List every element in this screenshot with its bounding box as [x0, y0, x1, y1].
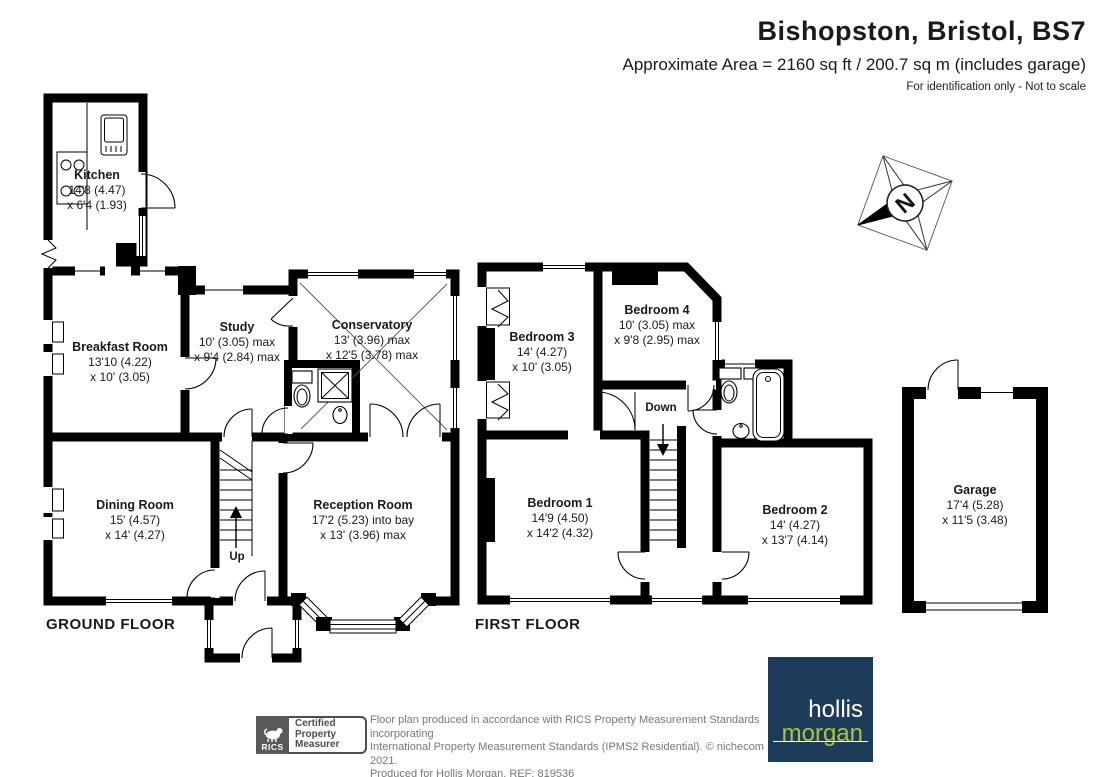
front-door-gap [240, 654, 272, 663]
header: Bishopston, Bristol, BS7 Approximate Are… [622, 16, 1086, 93]
bedroom3-door-gap [568, 431, 600, 440]
page-title: Bishopston, Bristol, BS7 [622, 16, 1086, 47]
bedroom3-window [543, 263, 585, 272]
bedroom4-door-gap [686, 381, 716, 390]
room-porch [209, 601, 297, 658]
rics-cert-box: Certified Property Measurer [289, 716, 367, 754]
room-label-bedroom2: Bedroom 2 14' (4.27) x 13'7 (4.14) [720, 503, 870, 548]
logo-morgan: morgan [782, 721, 863, 746]
room-label-kitchen: Kitchen 14'8 (4.47) x 6'4 (1.93) [22, 168, 172, 213]
dining-door-gap [211, 568, 220, 598]
wc-door-gap [285, 406, 293, 434]
bedroom1-door-gap [641, 552, 650, 582]
chimney-breast [612, 267, 658, 285]
stairwell-wall [677, 426, 686, 548]
study-hall-door-gap [222, 433, 252, 442]
room-label-study: Study 10' (3.05) max x 9'4 (2.84) max [162, 320, 312, 365]
conservatory-door-gap [368, 433, 442, 442]
room-label-bedroom1: Bedroom 1 14'9 (4.50) x 14'2 (4.32) [485, 496, 635, 541]
stairs-down [650, 424, 677, 540]
bay-window [291, 593, 436, 633]
rics-lion-icon [262, 726, 284, 742]
wall-chunk [178, 266, 196, 295]
compass-rose: N [836, 134, 974, 272]
hollis-morgan-logo: hollis morgan [768, 657, 873, 762]
disclaimer: For identification only - Not to scale [622, 81, 1086, 93]
floorplan-drawing: N [0, 0, 1100, 777]
hall-porch-door-gap [233, 595, 267, 606]
room-label-bedroom4: Bedroom 4 10' (3.05) max x 9'8 (2.95) ma… [582, 303, 732, 348]
first-floor-windows [510, 596, 840, 605]
rics-brand-box: RICS [256, 716, 289, 754]
footer-disclaimer: Floor plan produced in accordance with R… [370, 714, 770, 777]
logo-divider [773, 741, 868, 742]
bedroom3-door [597, 392, 635, 430]
room-label-reception: Reception Room 17'2 (5.23) into bay x 13… [288, 498, 438, 543]
ground-floor-label: GROUND FLOOR [46, 616, 175, 633]
reception-door-gap [279, 443, 288, 473]
room-label-dining: Dining Room 15' (4.57) x 14' (4.27) [60, 498, 210, 543]
stairs-down-label: Down [635, 402, 687, 414]
floorplan-page: N Bishopston, Bristol, BS7 Approximate A… [0, 0, 1100, 777]
stairs-up-label: Up [222, 551, 252, 563]
garage-door-gap [926, 386, 958, 399]
basin-icon [333, 407, 347, 424]
bathtub-icon [753, 369, 784, 441]
kitchen-window [137, 216, 146, 256]
garage-main-door [926, 600, 1022, 614]
bedroom2-door-gap [713, 552, 722, 582]
logo-hollis: hollis [808, 697, 863, 722]
bathroom-door-gap [713, 410, 722, 436]
shower-icon [318, 369, 352, 402]
garage-side-door [928, 360, 958, 390]
basin-icon [733, 424, 749, 439]
room-label-conservatory: Conservatory 13' (3.96) max x 12'5 (3.78… [297, 318, 447, 363]
kitchen-breakfast-opening [105, 267, 131, 276]
first-floor-label: FIRST FLOOR [475, 616, 581, 633]
stairs-up [220, 441, 252, 556]
rics-logo: RICS Certified Property Measurer [256, 716, 367, 754]
room-label-garage: Garage 17'4 (5.28) x 11'5 (3.48) [900, 483, 1050, 528]
area-subtitle: Approximate Area = 2160 sq ft / 200.7 sq… [622, 55, 1086, 75]
